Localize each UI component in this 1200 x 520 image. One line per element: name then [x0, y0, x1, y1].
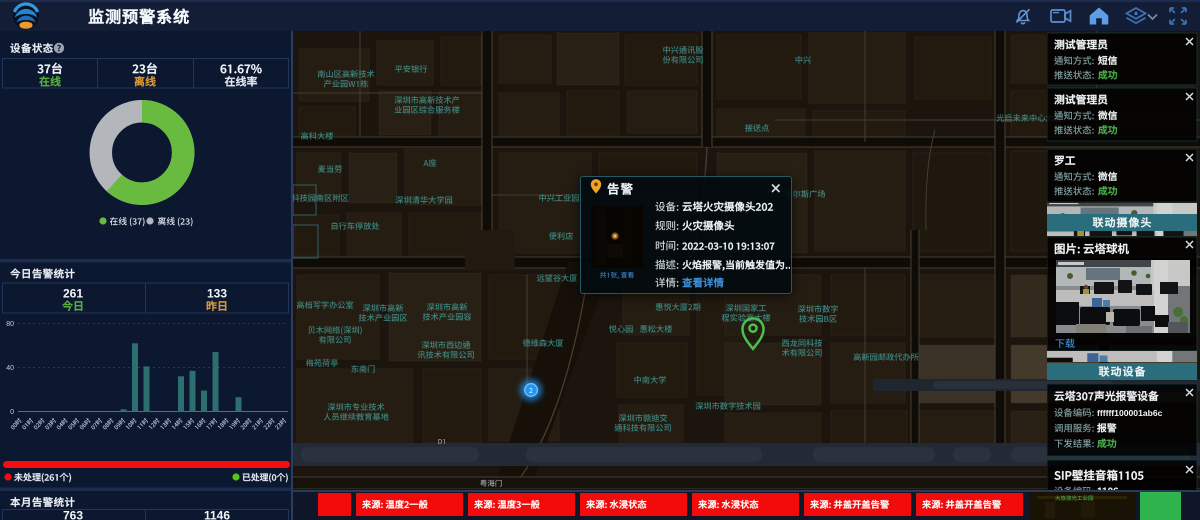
svg-text:40: 40 [6, 365, 14, 372]
svg-text:80: 80 [6, 321, 14, 328]
svg-text:133: 133 [207, 287, 227, 301]
svg-text:0: 0 [10, 409, 14, 416]
svg-text:763: 763 [63, 509, 83, 520]
svg-text:1146: 1146 [204, 509, 230, 520]
svg-text:261: 261 [63, 287, 83, 301]
svg-text:ffffff100001ab6c: ffffff100001ab6c [1097, 408, 1163, 418]
